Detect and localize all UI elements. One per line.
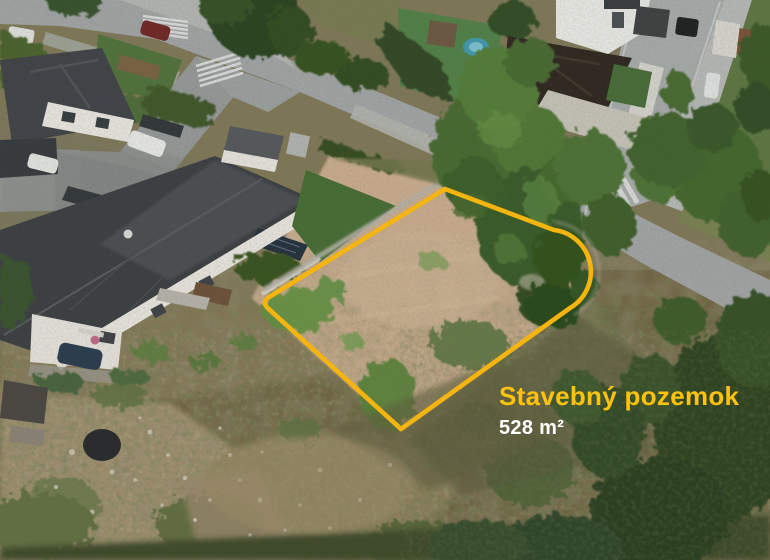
svg-text:Stavebný pozemok: Stavebný pozemok [499, 381, 740, 411]
svg-text:528 m²: 528 m² [499, 417, 564, 439]
